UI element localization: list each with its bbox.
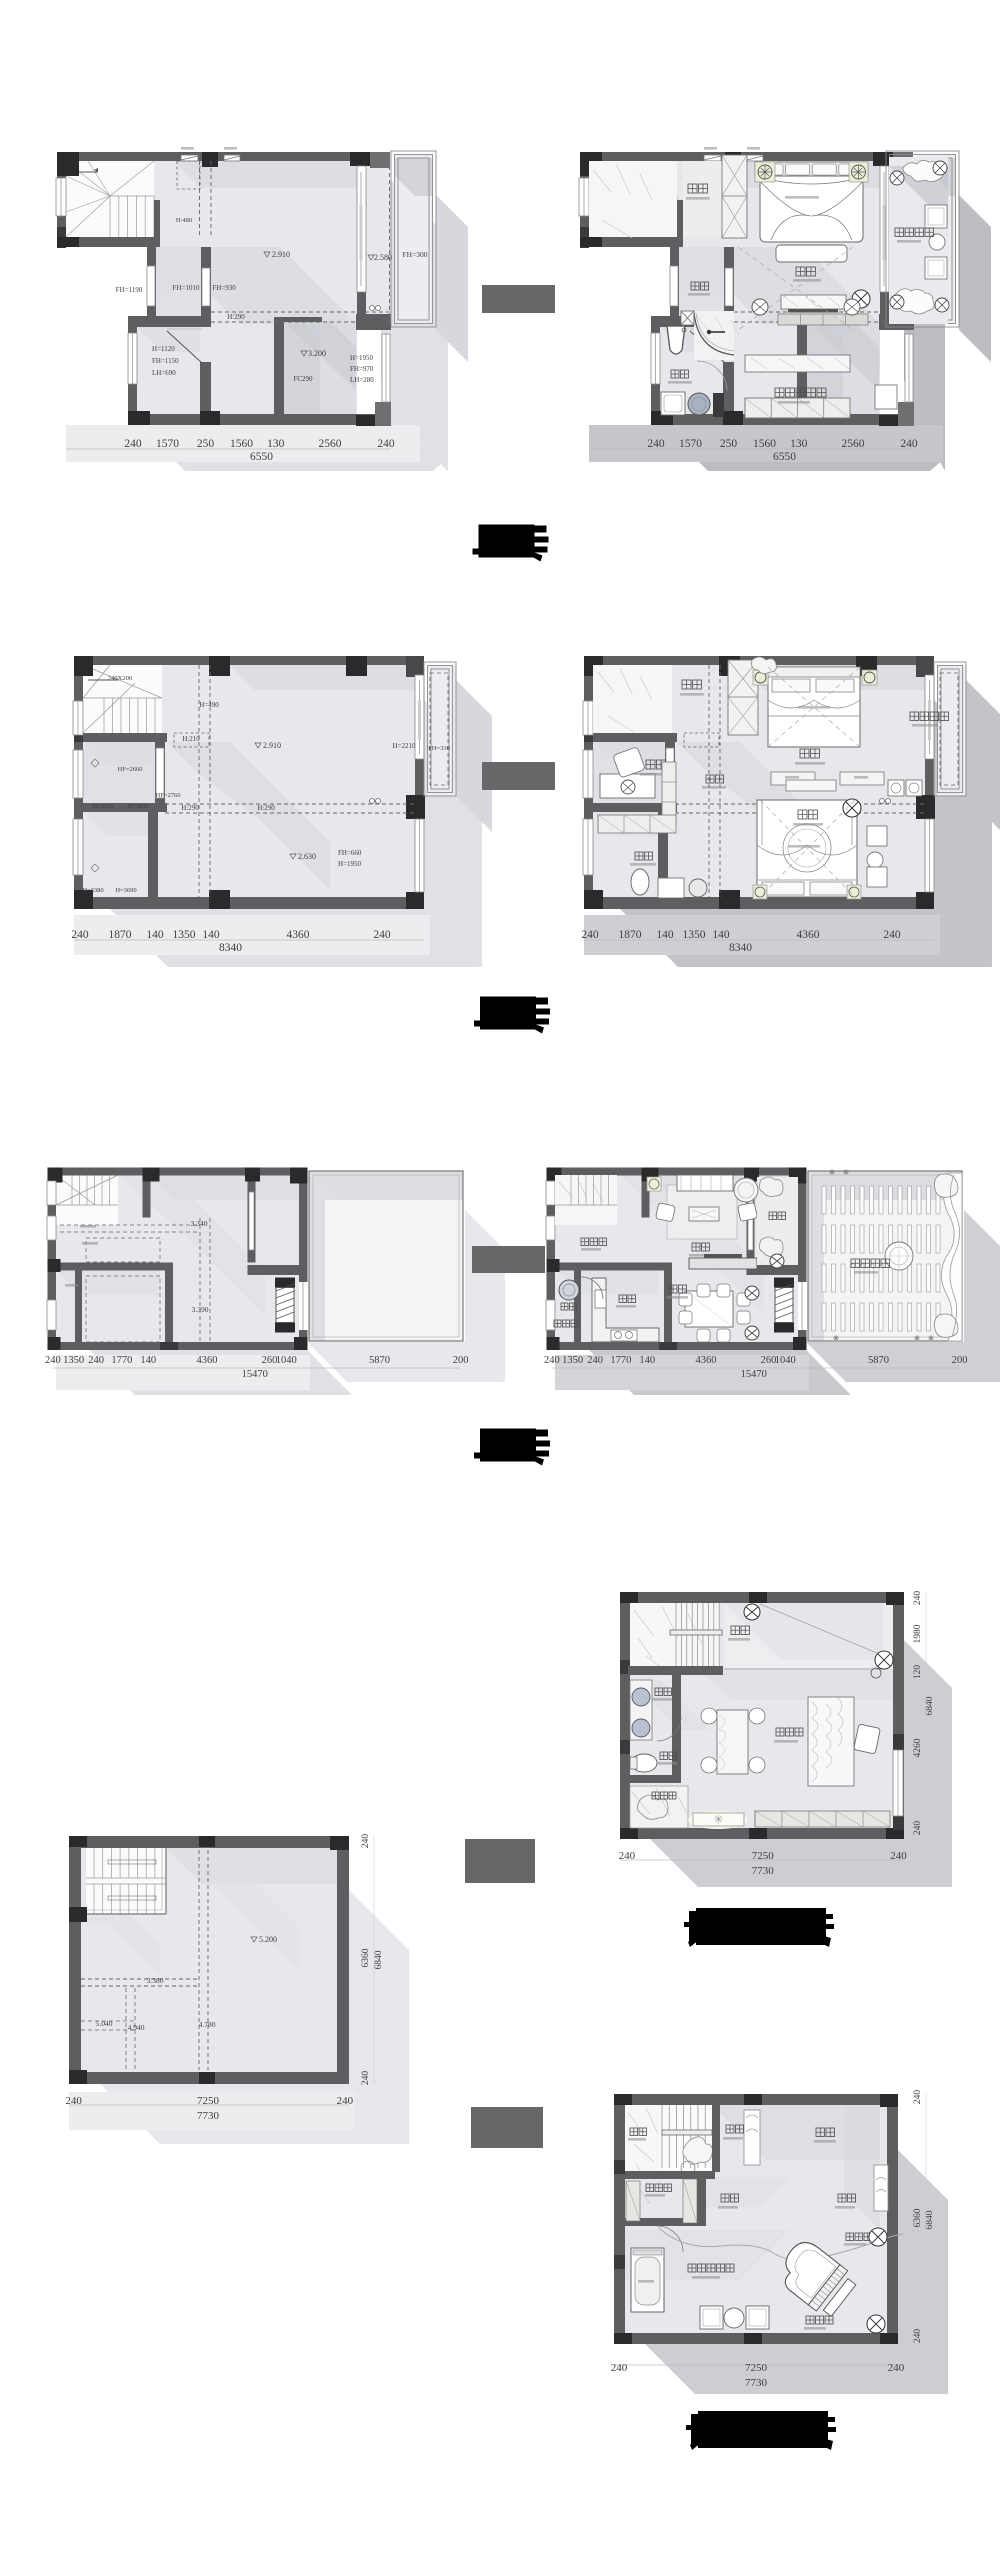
svg-text:240: 240: [373, 929, 391, 941]
svg-text:FH=1010: FH=1010: [173, 284, 200, 292]
svg-text:4.940: 4.940: [128, 2023, 145, 2032]
svg-text:240: 240: [900, 438, 918, 450]
svg-text:FH=930: FH=930: [212, 284, 236, 292]
svg-text:6550: 6550: [773, 451, 796, 463]
svg-text:140: 140: [146, 929, 164, 941]
svg-text:5.040: 5.040: [96, 2019, 113, 2028]
svg-text:140: 140: [712, 929, 730, 941]
svg-text:240: 240: [888, 2362, 905, 2374]
svg-text:240: 240: [88, 1355, 104, 1366]
svg-text:1350: 1350: [63, 1355, 84, 1366]
svg-text:6360: 6360: [361, 1948, 371, 1967]
svg-text:FH=1150: FH=1150: [152, 357, 179, 365]
svg-text:FH=1190: FH=1190: [116, 286, 143, 294]
svg-text:H:290: H:290: [227, 313, 245, 321]
svg-text:200: 200: [952, 1355, 968, 1366]
svg-text:2560: 2560: [319, 438, 342, 450]
svg-text:8340: 8340: [729, 942, 752, 954]
svg-text:15470: 15470: [242, 1369, 268, 1380]
svg-text:130: 130: [267, 438, 285, 450]
svg-text:120: 120: [913, 1665, 923, 1680]
svg-text:1350: 1350: [683, 929, 706, 941]
svg-text:240: 240: [913, 1821, 923, 1836]
svg-text:1040: 1040: [775, 1355, 796, 1366]
svg-text:6840: 6840: [925, 1696, 935, 1715]
svg-text:6360: 6360: [913, 2208, 923, 2227]
svg-text:240: 240: [124, 438, 142, 450]
svg-text:240: 240: [65, 2095, 82, 2107]
svg-text:240: 240: [913, 2329, 923, 2344]
svg-text:140: 140: [140, 1355, 156, 1366]
svg-text:7730: 7730: [197, 2110, 220, 2122]
svg-text:15470: 15470: [741, 1369, 767, 1380]
svg-text:H=1950: H=1950: [338, 860, 362, 868]
svg-text:240: 240: [361, 1834, 371, 1849]
svg-text:240: 240: [619, 1850, 636, 1862]
svg-text:FC290: FC290: [293, 375, 313, 383]
svg-text:H=490: H=490: [199, 701, 219, 709]
svg-text:240: 240: [45, 1355, 61, 1366]
svg-text:4260: 4260: [913, 1738, 923, 1757]
svg-text:5870: 5870: [369, 1355, 390, 1366]
svg-text:3.200: 3.200: [308, 349, 326, 358]
svg-text:4360: 4360: [797, 929, 820, 941]
svg-text:7250: 7250: [752, 1850, 775, 1862]
svg-text:200: 200: [453, 1355, 469, 1366]
svg-text:2.630: 2.630: [298, 852, 316, 861]
svg-text:240: 240: [581, 929, 599, 941]
svg-text:3.380: 3.380: [147, 1976, 164, 1985]
svg-text:LH=280: LH=280: [350, 376, 374, 384]
svg-text:4.780: 4.780: [199, 2020, 216, 2029]
svg-text:240: 240: [71, 929, 89, 941]
svg-text:6550: 6550: [250, 451, 273, 463]
svg-text:H=3380: H=3380: [82, 887, 103, 894]
svg-text:1560: 1560: [753, 438, 776, 450]
svg-text:2.580: 2.580: [374, 253, 392, 262]
svg-text:6840: 6840: [374, 1950, 384, 1969]
svg-text:H:290: H:290: [257, 804, 275, 812]
svg-text:1350: 1350: [173, 929, 196, 941]
svg-text:H=2210: H=2210: [392, 742, 416, 750]
svg-text:6840: 6840: [925, 2210, 935, 2229]
svg-text:1350: 1350: [562, 1355, 583, 1366]
svg-text:HF=2760: HF=2760: [156, 792, 181, 799]
svg-text:FH=970: FH=970: [350, 365, 374, 373]
svg-text:240: 240: [913, 2090, 923, 2105]
svg-text:240: 240: [890, 1850, 907, 1862]
svg-text:1870: 1870: [619, 929, 642, 941]
svg-text:1980: 1980: [913, 1624, 923, 1643]
svg-text:240: 240: [647, 438, 665, 450]
svg-text:H:480: H:480: [176, 217, 192, 224]
svg-text:H:290: H:290: [181, 804, 199, 812]
svg-text:5.200: 5.200: [259, 1935, 277, 1944]
svg-text:HF=2660: HF=2660: [118, 766, 143, 773]
svg-text:2.910: 2.910: [272, 250, 290, 259]
svg-text:240: 240: [587, 1355, 603, 1366]
svg-text:240: 240: [337, 2095, 354, 2107]
svg-text:140: 140: [639, 1355, 655, 1366]
svg-text:4360: 4360: [287, 929, 310, 941]
svg-text:1770: 1770: [111, 1355, 132, 1366]
svg-text:240: 240: [377, 438, 395, 450]
svg-text:1570: 1570: [679, 438, 702, 450]
svg-text:240X200: 240X200: [108, 675, 132, 682]
svg-text:250: 250: [720, 438, 738, 450]
svg-text:2.910: 2.910: [263, 741, 281, 750]
svg-text:140: 140: [202, 929, 220, 941]
svg-text:7250: 7250: [197, 2095, 220, 2107]
svg-text:7250: 7250: [745, 2362, 768, 2374]
svg-text:H=3350: H=3350: [92, 803, 113, 810]
svg-text:240: 240: [611, 2362, 628, 2374]
svg-text:5870: 5870: [868, 1355, 889, 1366]
svg-text:240: 240: [544, 1355, 560, 1366]
svg-text:7730: 7730: [752, 1865, 775, 1877]
svg-text:FH=300: FH=300: [402, 250, 427, 259]
svg-text:H:210: H:210: [182, 735, 200, 743]
svg-text:7730: 7730: [745, 2377, 768, 2389]
svg-text:130: 130: [790, 438, 808, 450]
svg-text:LH=690: LH=690: [152, 369, 176, 377]
svg-text:3.390: 3.390: [192, 1305, 209, 1314]
svg-text:H=1950: H=1950: [350, 354, 374, 362]
svg-text:H=3800: H=3800: [127, 803, 148, 810]
svg-text:240: 240: [883, 929, 901, 941]
svg-text:FH=330: FH=330: [428, 745, 450, 752]
svg-text:FH=660: FH=660: [338, 849, 362, 857]
svg-text:4360: 4360: [696, 1355, 717, 1366]
svg-text:1040: 1040: [276, 1355, 297, 1366]
svg-text:1870: 1870: [109, 929, 132, 941]
svg-text:2560: 2560: [842, 438, 865, 450]
svg-text:4360: 4360: [197, 1355, 218, 1366]
svg-text:240: 240: [361, 2071, 371, 2086]
svg-text:3.340: 3.340: [191, 1219, 208, 1228]
svg-text:250: 250: [197, 438, 215, 450]
svg-text:140: 140: [656, 929, 674, 941]
svg-text:8340: 8340: [219, 942, 242, 954]
svg-text:240: 240: [913, 1591, 923, 1606]
svg-text:1560: 1560: [230, 438, 253, 450]
svg-text:1770: 1770: [610, 1355, 631, 1366]
svg-text:H=3690: H=3690: [115, 887, 136, 894]
svg-text:1570: 1570: [156, 438, 179, 450]
svg-text:H=1120: H=1120: [152, 345, 175, 353]
